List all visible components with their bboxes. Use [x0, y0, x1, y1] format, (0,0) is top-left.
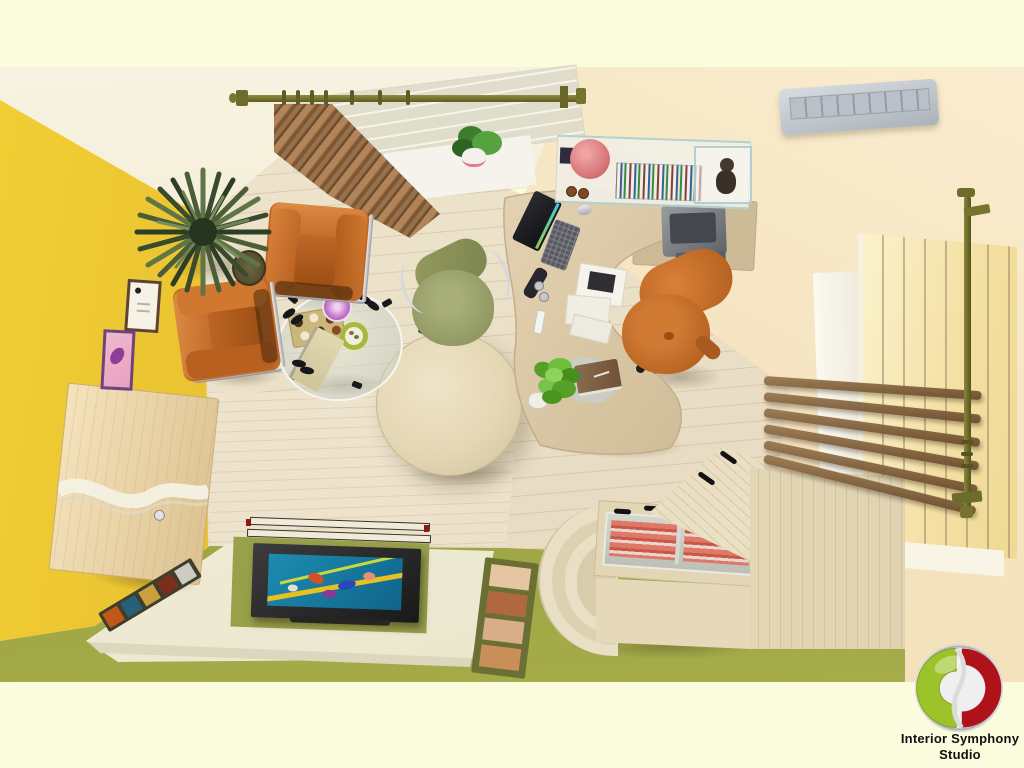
photo-thumb [138, 584, 161, 606]
tablet-screen [587, 271, 615, 293]
rod-right-knob [957, 188, 975, 197]
notebook-strap [594, 371, 610, 378]
photo-thumb [102, 606, 125, 628]
photo-thumb [479, 644, 521, 671]
shelf-strip-end-cap [246, 519, 251, 526]
cup [578, 188, 589, 199]
desk-knob [539, 292, 549, 302]
curtain-ring [310, 90, 314, 105]
curtain-rod-bracket-right [560, 86, 568, 108]
shelf-strip-end-cap [424, 525, 429, 532]
teddy-display-box [694, 146, 752, 204]
cookie [309, 313, 319, 323]
tv-image-figure [337, 579, 357, 592]
photo-thumb [120, 595, 143, 617]
cup [566, 186, 577, 197]
curtain-ring [296, 90, 300, 105]
curtain-ring [406, 90, 410, 105]
curtain-ring [378, 90, 382, 105]
curtain-ring [324, 90, 328, 105]
floor-plant [128, 162, 280, 304]
photo-thumb [174, 562, 197, 584]
slat-blind [762, 372, 990, 502]
sideboard-wave-inlay [50, 384, 219, 585]
photo-thumb [489, 564, 531, 591]
printer-lid [669, 212, 716, 244]
armchair-seat [293, 234, 337, 287]
certificate-text-line [137, 310, 150, 313]
render-canvas: Interior Symphony Studio [0, 0, 1024, 768]
executive-chair-seat [622, 294, 710, 374]
photo-thumb [486, 591, 528, 618]
food-crumb [349, 331, 354, 335]
studio-name-line2: Studio [878, 747, 1024, 762]
studio-name-line1: Interior Symphony [878, 731, 1024, 746]
teddy-bear-body [716, 170, 736, 194]
display-contents-red [609, 520, 677, 561]
curtain-rod-finial-right [576, 88, 586, 104]
tv-image-figure [322, 590, 336, 598]
food-crumb [354, 335, 359, 339]
shelf-book-row [615, 163, 702, 202]
curtain-ring [350, 90, 354, 105]
rod-ring [961, 440, 973, 444]
desk-knob [534, 281, 544, 291]
green-plate [340, 322, 368, 350]
tv-screen [267, 554, 403, 611]
seat-button [664, 332, 674, 340]
ac-vent [789, 88, 930, 120]
desk-plant-leaf [545, 368, 563, 382]
photo-thumb [482, 618, 524, 645]
rod-ring [961, 464, 973, 468]
curtain-rod-tip-left [229, 93, 237, 103]
rod-right-end-cap [960, 506, 973, 518]
curtain-rod-finial-left [236, 90, 248, 106]
sideboard [49, 383, 220, 586]
pink-vase [570, 139, 610, 179]
curtain-ring [282, 90, 286, 105]
studio-logo [912, 641, 1006, 735]
rod-ring [961, 452, 973, 456]
photo-thumb [156, 573, 179, 595]
art-motif [107, 345, 127, 367]
windowsill-plant-pot [462, 148, 486, 167]
desk-plant-leaf [542, 390, 562, 404]
art-frame [100, 329, 135, 391]
